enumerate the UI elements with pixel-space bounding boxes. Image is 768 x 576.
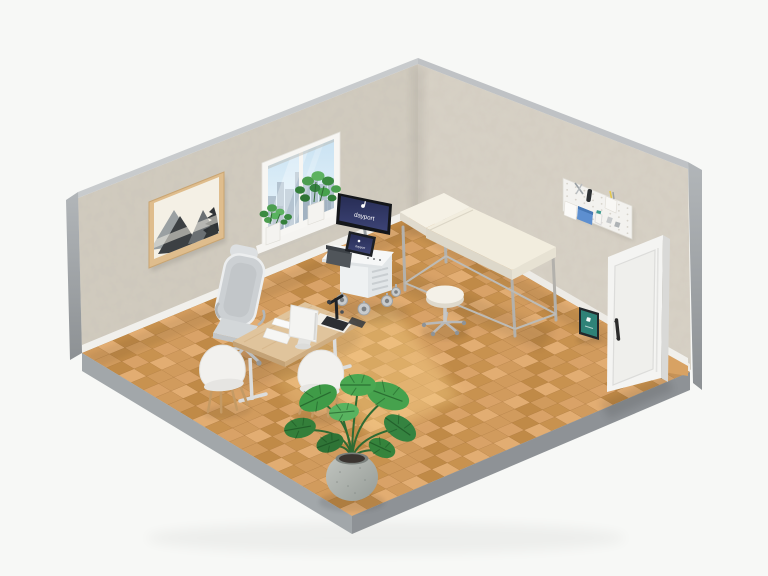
stool-seat bbox=[426, 286, 464, 304]
pot-soil bbox=[339, 454, 365, 463]
wall-corner-shadow bbox=[411, 66, 424, 214]
scene-examination-room: dayport dayport bbox=[0, 0, 768, 576]
door-inset-panel bbox=[613, 250, 655, 385]
isometric-room-illustration: dayport dayport bbox=[0, 0, 768, 576]
room-ground-shadow bbox=[146, 522, 626, 554]
